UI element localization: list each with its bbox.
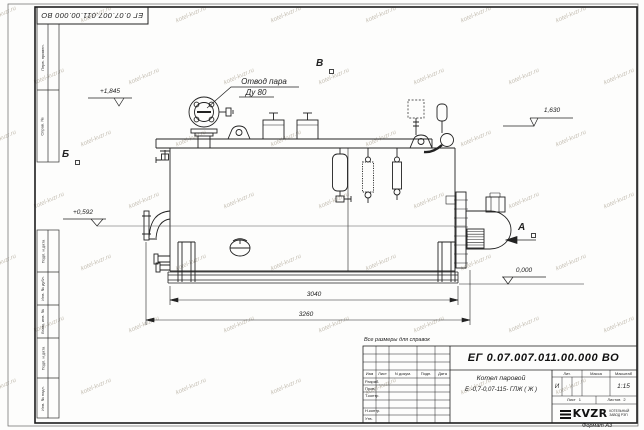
scale-value: 1:15 [610, 377, 637, 396]
view-label-b-sub-mark [75, 160, 80, 165]
view-label-b: Б [62, 149, 69, 160]
water-gauge-2 [363, 148, 374, 203]
support-foot-front [178, 242, 195, 282]
burner-assembly [446, 192, 511, 268]
view-label-a-sub-mark [531, 233, 536, 238]
elev-mark-1845 [88, 98, 132, 106]
elev-mark-0000 [459, 277, 584, 284]
col-header-list: Лист [376, 370, 389, 378]
water-gauge-3 [393, 148, 402, 200]
lifting-lug-rear [410, 135, 432, 148]
top-corner-doc-number: ЕГ 0.07.007.011.00.000 ВО [37, 7, 148, 24]
left-drain-stubs [154, 254, 170, 272]
elevation-0592: +0,592 [60, 207, 106, 217]
top-stamp-text: ЕГ 0.07.007.011.00.000 ВО [41, 11, 143, 20]
format-note: Формат А3 [582, 423, 612, 429]
level-electrode [437, 104, 447, 133]
reference-note: Все размеры для справок [364, 337, 430, 343]
col-header-data: Дата [435, 370, 450, 378]
left-elbow-flange [142, 211, 170, 240]
view-label-v: В [316, 58, 323, 69]
margin-block-sprav-no: Справ. № [37, 90, 48, 162]
row-label-prov: Пров. [365, 387, 376, 391]
elevation-marks [63, 87, 584, 284]
callout-steam-outlet: Отвод пара [228, 76, 300, 86]
lifting-lug-front [228, 126, 250, 139]
sheet-label: Лист [567, 398, 576, 402]
left-top-valve [156, 150, 170, 163]
row-label-tkontr: Т.контр. [365, 394, 380, 398]
elev-mark-1630 [503, 118, 573, 126]
col-header-docnum: N докум. [389, 370, 417, 378]
margin-block-perv-primen: Перв. примен. [37, 24, 48, 90]
massa-header: Масса [582, 371, 610, 377]
elevation-0000: 0,000 [502, 265, 546, 275]
callout-du80: Ду 80 [236, 87, 276, 97]
sight-glass [230, 239, 250, 256]
sheets-label: Листов [607, 398, 620, 402]
elevation-1630: 1,630 [530, 105, 574, 115]
margin-block-vzam-inv: Взам. инв. № [37, 305, 48, 338]
view-label-a: А [518, 222, 525, 233]
kvzr-logo-text: KVZR [573, 407, 608, 420]
drawing-sheet: kotel-kvzr.rukotel-kvzr.rukotel-kvzr.ruk… [0, 0, 644, 430]
col-header-podp: Подп. [417, 370, 435, 378]
kvzr-logo-subtext: КОТЕЛЬНЫЙ ЗАВОД РЭП [609, 410, 629, 418]
col-header-izm: Изм [363, 370, 376, 378]
dimension-3040: 3040 [294, 290, 334, 299]
boiler-side-view [97, 97, 511, 283]
sheet-cell: Лист 1 [552, 396, 596, 404]
margin-block-inv-dubl: Инв. № дубл. [37, 272, 48, 305]
sheets-num: 2 [623, 398, 625, 402]
row-label-nkontr: Н.контр. [365, 409, 380, 413]
skid-base [168, 272, 458, 283]
company-logo-cell: KVZR КОТЕЛЬНЫЙ ЗАВОД РЭП [552, 404, 637, 423]
lit-value: И [552, 377, 562, 396]
margin-block-podp-data-1: Подп. и дата [37, 230, 48, 272]
sheets-cell: Листов 2 [596, 396, 637, 404]
roof-box-1 [263, 113, 284, 139]
support-foot-rear [438, 242, 455, 282]
row-label-razrab: Разраб. [365, 380, 379, 384]
elevation-1845: +1,845 [88, 86, 132, 96]
margin-block-inv-podl: Инв. № подл. [37, 378, 48, 418]
margin-block-podp-data-2: Подп. и дата [37, 338, 48, 378]
elev-mark-0592 [63, 219, 106, 226]
curved-pipe [424, 134, 454, 153]
row-label-utv: Утв. [365, 417, 373, 421]
hatch-dashed-outline [408, 100, 424, 135]
title-doc-number: ЕГ 0.07.007.011.00.000 ВО [450, 347, 637, 369]
product-name-line1: Котел паровой [452, 372, 550, 384]
roof-box-2 [297, 113, 318, 139]
view-label-v-sub-mark [329, 69, 334, 74]
boiler-body [170, 148, 455, 271]
product-name-line2: Е -0,7-0,07-115- ГЛЖ ( Ж ) [452, 384, 550, 396]
sheet-num: 1 [579, 398, 581, 402]
dimension-3260: 3260 [286, 310, 326, 319]
kvzr-logo-icon [560, 408, 571, 419]
